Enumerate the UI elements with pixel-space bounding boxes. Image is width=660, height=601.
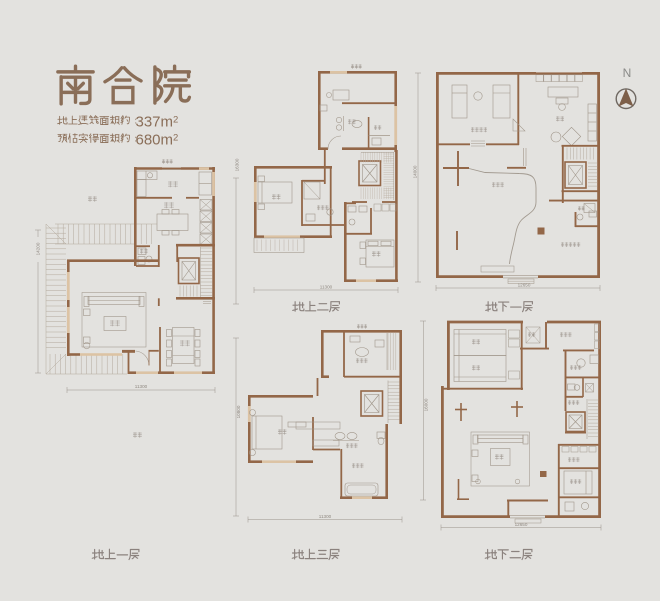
svg-text:11300: 11300 (319, 514, 332, 519)
svg-text:337m2: 337m2 (136, 113, 179, 130)
svg-text:14000: 14000 (413, 165, 418, 178)
svg-text:12650: 12650 (518, 282, 531, 287)
svg-text:680m2: 680m2 (136, 131, 179, 148)
svg-text:11300: 11300 (135, 384, 148, 389)
svg-text:14200: 14200 (36, 242, 41, 255)
svg-text:N: N (623, 66, 632, 80)
svg-text:16000: 16000 (424, 398, 429, 411)
svg-text:12650: 12650 (515, 522, 528, 527)
svg-text:10800: 10800 (236, 405, 241, 418)
svg-text:11300: 11300 (320, 284, 333, 289)
svg-text:16300: 16300 (235, 158, 240, 171)
